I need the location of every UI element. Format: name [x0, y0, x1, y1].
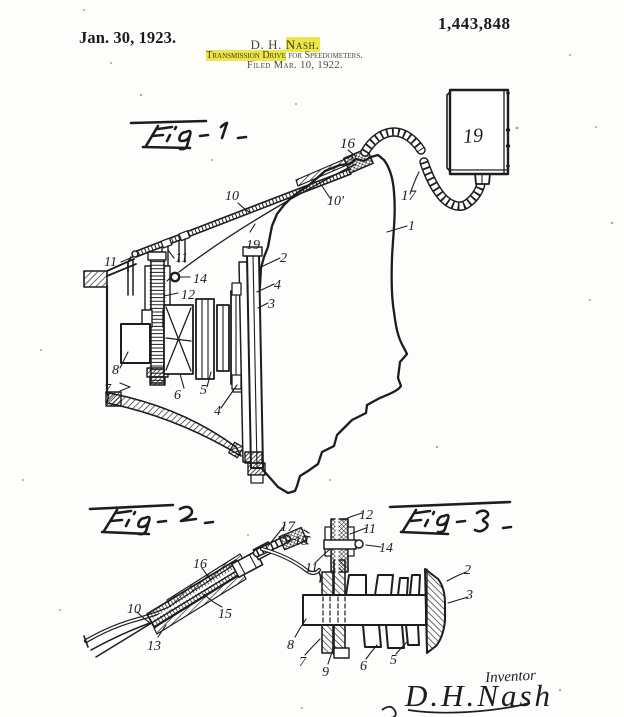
svg-text:7: 7	[104, 382, 112, 397]
svg-text:6: 6	[174, 388, 181, 403]
svg-text:17: 17	[401, 188, 418, 204]
svg-text:D.H.Nash: D.H.Nash	[404, 678, 553, 713]
svg-text:3: 3	[267, 297, 275, 312]
svg-text:16: 16	[193, 557, 207, 572]
svg-text:2: 2	[464, 563, 471, 578]
svg-text:11: 11	[305, 561, 318, 576]
svg-text:16: 16	[340, 136, 356, 152]
svg-text:6: 6	[360, 659, 367, 674]
svg-text:11: 11	[104, 255, 117, 270]
svg-text:4: 4	[214, 404, 221, 419]
svg-text:14: 14	[193, 272, 207, 287]
svg-text:13: 13	[147, 639, 161, 654]
svg-text:17: 17	[280, 519, 297, 535]
svg-text:10': 10'	[327, 194, 345, 209]
svg-text:19: 19	[246, 238, 260, 253]
svg-text:10: 10	[225, 189, 239, 204]
svg-text:5: 5	[200, 383, 207, 398]
svg-text:2: 2	[280, 251, 287, 266]
svg-text:4: 4	[274, 278, 281, 293]
svg-text:10: 10	[127, 602, 141, 617]
svg-text:18: 18	[294, 534, 308, 549]
svg-text:11: 11	[363, 522, 376, 537]
svg-text:14: 14	[379, 541, 393, 556]
svg-text:8: 8	[112, 363, 119, 378]
svg-text:19: 19	[462, 124, 483, 147]
svg-text:5: 5	[390, 653, 397, 668]
svg-text:8: 8	[287, 638, 294, 653]
svg-text:3: 3	[465, 588, 473, 603]
svg-text:1: 1	[408, 219, 415, 234]
svg-text:7: 7	[299, 655, 307, 670]
svg-text:12: 12	[181, 288, 195, 303]
svg-text:12: 12	[359, 508, 373, 523]
svg-text:9: 9	[322, 665, 329, 680]
svg-text:15: 15	[218, 607, 232, 622]
svg-text:11: 11	[175, 251, 188, 266]
